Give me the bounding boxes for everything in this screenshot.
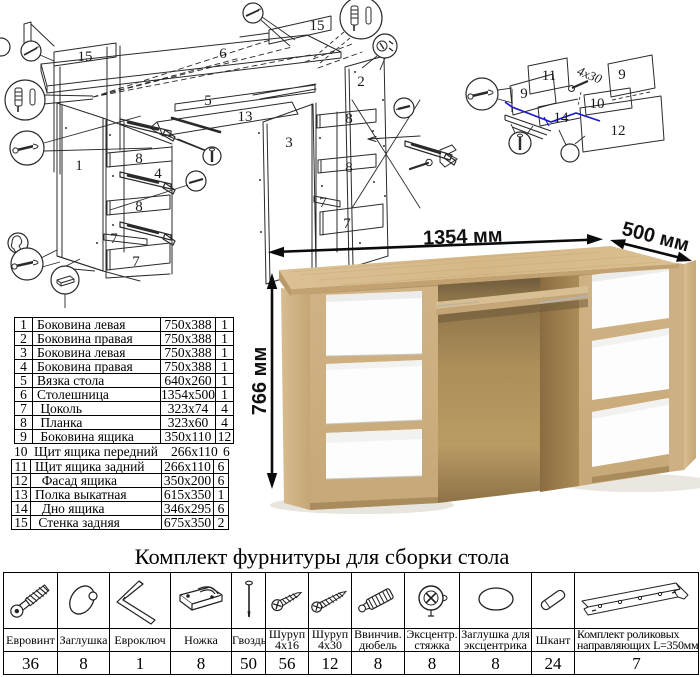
svg-text:15: 15 [310,18,325,34]
svg-text:766 мм: 766 мм [249,347,271,416]
svg-text:9: 9 [618,67,626,83]
svg-text:12: 12 [611,123,626,139]
svg-text:1: 1 [75,158,83,174]
svg-text:6: 6 [219,46,227,62]
svg-text:10: 10 [590,96,605,112]
svg-text:14: 14 [554,110,570,126]
svg-text:9: 9 [520,86,528,102]
svg-text:2: 2 [357,74,365,90]
svg-text:13: 13 [238,109,253,125]
svg-text:8: 8 [135,199,143,215]
svg-text:11: 11 [542,68,556,84]
svg-text:7: 7 [132,254,140,270]
svg-text:1354 мм: 1354 мм [423,224,503,249]
svg-text:8: 8 [345,160,353,176]
svg-text:4х30: 4х30 [575,63,605,87]
svg-text:5: 5 [204,93,212,109]
svg-text:8: 8 [135,151,143,167]
svg-text:8: 8 [345,111,353,127]
svg-text:3: 3 [285,135,293,151]
svg-text:7: 7 [110,231,118,247]
svg-text:4: 4 [154,166,162,182]
svg-text:7: 7 [319,195,327,211]
svg-text:15: 15 [78,49,93,65]
svg-text:7: 7 [343,216,351,232]
